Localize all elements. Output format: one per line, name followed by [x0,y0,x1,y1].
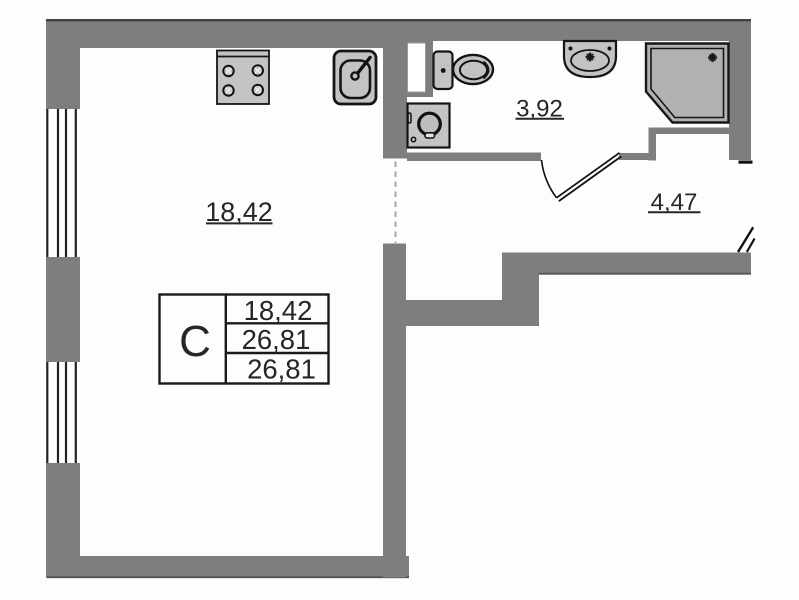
svg-text:26,81: 26,81 [247,353,316,384]
svg-text:26,81: 26,81 [242,324,311,355]
svg-text:18,42: 18,42 [244,295,313,326]
svg-text:C: C [179,317,211,366]
